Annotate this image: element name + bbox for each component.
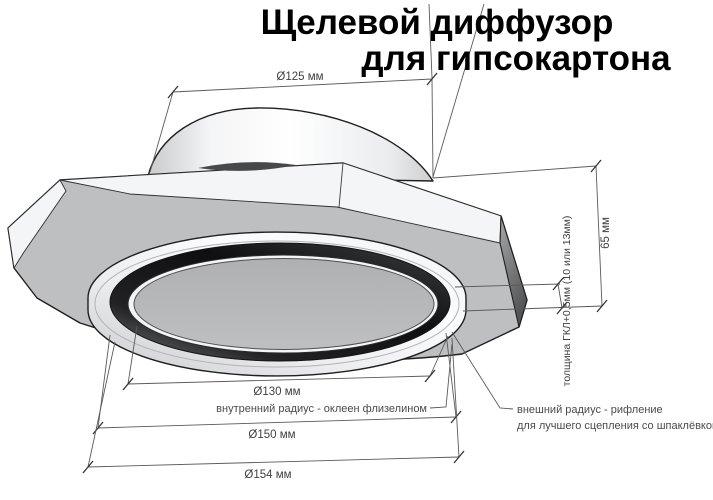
diffuser-rings (88, 232, 466, 376)
annotation-inner-radius-label: внутренний радиус - оклеен флизелином (216, 403, 427, 415)
dim-label-outer-diameter: Ø150 мм (248, 429, 295, 441)
annotation-outer-radius-line2: для лучшего сцепления со шпаклёвкой (517, 420, 713, 432)
dim-label-board-thickness: толщина ГКЛ+0,5мм (10 или 13мм) (561, 216, 573, 387)
dim-label-flange-diameter: Ø154 мм (244, 469, 291, 481)
drawing-canvas: Ø125 мм 65 мм толщина ГКЛ+0,5мм (10 или … (0, 0, 713, 500)
dim-label-height: 65 мм (600, 217, 612, 249)
drawing-title-line2: для гипсокартона (361, 39, 671, 78)
technical-drawing: Ø125 мм 65 мм толщина ГКЛ+0,5мм (10 или … (0, 0, 713, 500)
drawing-title-line1: Щелевой диффузор (261, 3, 614, 42)
annotation-outer-radius: внешний радиус - рифление для лучшего сц… (452, 332, 713, 432)
dim-label-inner-diameter: Ø130 мм (253, 386, 300, 398)
center-disc (134, 259, 434, 350)
dim-label-collar-diameter: Ø125 мм (276, 71, 323, 83)
annotation-outer-radius-line1: внешний радиус - рифление (517, 404, 663, 416)
